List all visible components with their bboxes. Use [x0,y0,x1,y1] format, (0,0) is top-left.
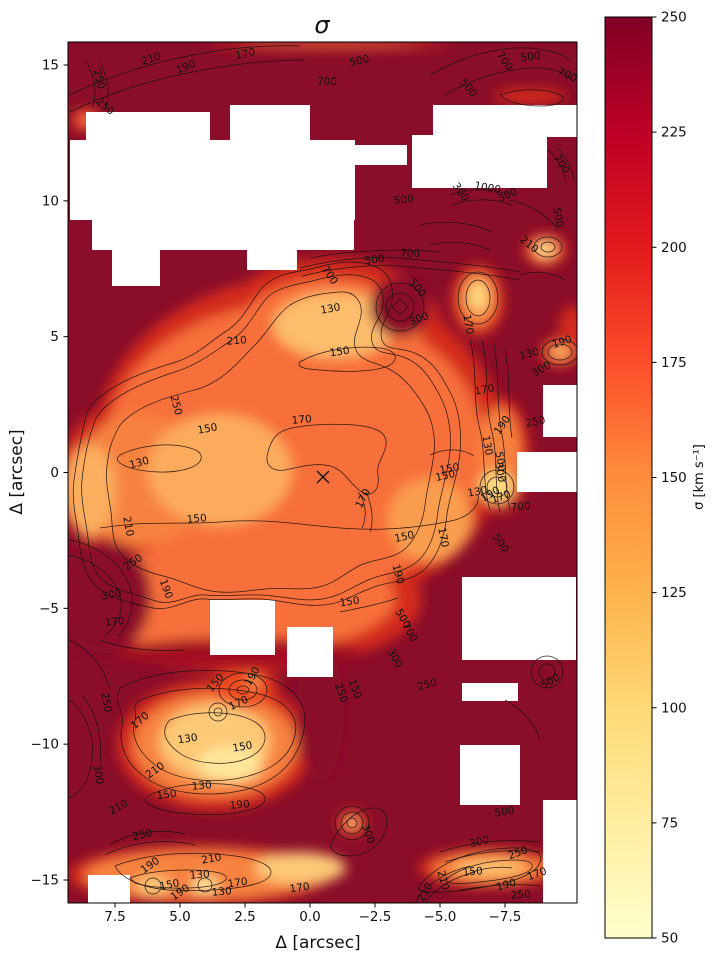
x-tick-label: 0.0 [299,909,320,925]
masked-region [517,452,577,492]
masked-region [545,105,577,137]
colorbar-tick-label: 200 [661,240,687,256]
masked-region [543,385,577,437]
colorbar-tick-label: 150 [661,470,687,486]
colorbar-tick-label: 250 [661,10,687,26]
masked-region [462,577,576,660]
contour-label: 130 [191,779,212,793]
colorbar-tick-label: 125 [661,585,687,601]
y-axis-ticks: 151050−5−10−15 [31,58,69,889]
colorbar-label: σ [km s⁻¹] [692,444,707,510]
contour-label: 150 [186,512,207,526]
x-tick-label: −5.0 [424,909,457,925]
x-tick-label: 5.0 [169,909,190,925]
contour-label: 210 [226,334,247,348]
y-tick-label: −5 [39,601,59,617]
y-axis-label: Δ [arcsec] [7,429,27,514]
masked-region [92,220,354,250]
colorbar [605,17,652,938]
colorbar-tick-label: 50 [661,931,678,947]
y-tick-label: −10 [31,737,60,753]
colorbar-tick-label: 75 [661,815,678,831]
x-axis-ticks: 7.55.02.50.0−2.5−5.0−7.5 [104,903,521,925]
contour-label: 700 [510,500,531,514]
map-area: 2502502101901707005005007005007005003001… [58,41,585,905]
masked-region [86,112,210,140]
contour-label: 130 [211,885,232,899]
colorbar-tick-label: 175 [661,355,687,371]
figure-canvas: 2502502101901707005005007005007005003001… [0,0,722,968]
contour-label: 700 [400,248,420,260]
masked-region [462,683,518,701]
colorbar-tick-label: 100 [661,700,687,716]
masked-region [247,248,297,270]
masked-region [433,105,545,135]
y-tick-label: 0 [50,465,59,481]
x-tick-label: 2.5 [234,909,255,925]
contour-label: 500 [393,193,414,207]
x-tick-label: 7.5 [104,909,125,925]
contour-label: 190 [229,798,250,812]
contour-label: 250 [510,888,531,902]
masked-region [88,875,130,903]
masked-region [210,600,275,655]
contour-label: 150 [462,865,483,879]
masked-region [287,627,333,677]
x-tick-label: −7.5 [489,909,522,925]
x-tick-label: −2.5 [359,909,392,925]
colorbar-tick-label: 225 [661,125,687,141]
colorbar-ticks: 2502252001751501251007550 [652,10,687,947]
figure: 2502502101901707005005007005007005003001… [0,0,722,968]
x-axis-label: Δ [arcsec] [275,933,360,953]
masked-region [70,140,355,220]
masked-region [112,250,160,286]
y-tick-label: 10 [42,193,59,209]
contour-label: 130 [189,868,210,882]
masked-region [230,105,310,140]
contour-label: 700 [317,76,337,88]
masked-region [460,745,520,805]
masked-region [543,800,577,903]
y-tick-label: 15 [42,58,59,74]
masked-region [353,145,407,165]
contour-label: 170 [104,615,125,629]
contour-label: 170 [291,413,312,427]
y-tick-label: −15 [31,872,60,888]
plot-title: σ [314,11,330,39]
y-tick-label: 5 [50,329,59,345]
